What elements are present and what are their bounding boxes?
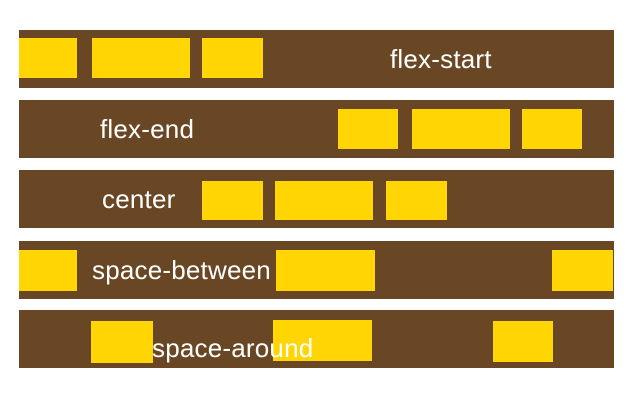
justify-content-label: space-between: [92, 241, 271, 299]
flex-item-box: [552, 250, 613, 291]
flexbox-justify-content-diagram: flex-startflex-endcenterspace-betweenspa…: [0, 0, 640, 400]
flex-item-box: [92, 38, 190, 78]
flex-item-box: [276, 250, 375, 291]
flex-item-box: [412, 109, 510, 149]
flex-item-box: [275, 181, 373, 220]
flex-item-box: [202, 181, 263, 220]
flex-item-box: [91, 321, 153, 363]
flex-item-box: [493, 321, 553, 362]
justify-content-label: center: [102, 170, 175, 228]
justify-content-label: flex-end: [100, 100, 194, 158]
flex-item-box: [386, 181, 447, 220]
flex-item-box: [338, 109, 398, 149]
flex-item-box: [522, 109, 582, 149]
flex-item-box: [19, 250, 77, 291]
justify-content-label: flex-start: [390, 30, 492, 88]
flex-item-box: [202, 38, 263, 78]
flex-item-box: [19, 38, 77, 78]
justify-content-label: space-around: [152, 319, 313, 377]
